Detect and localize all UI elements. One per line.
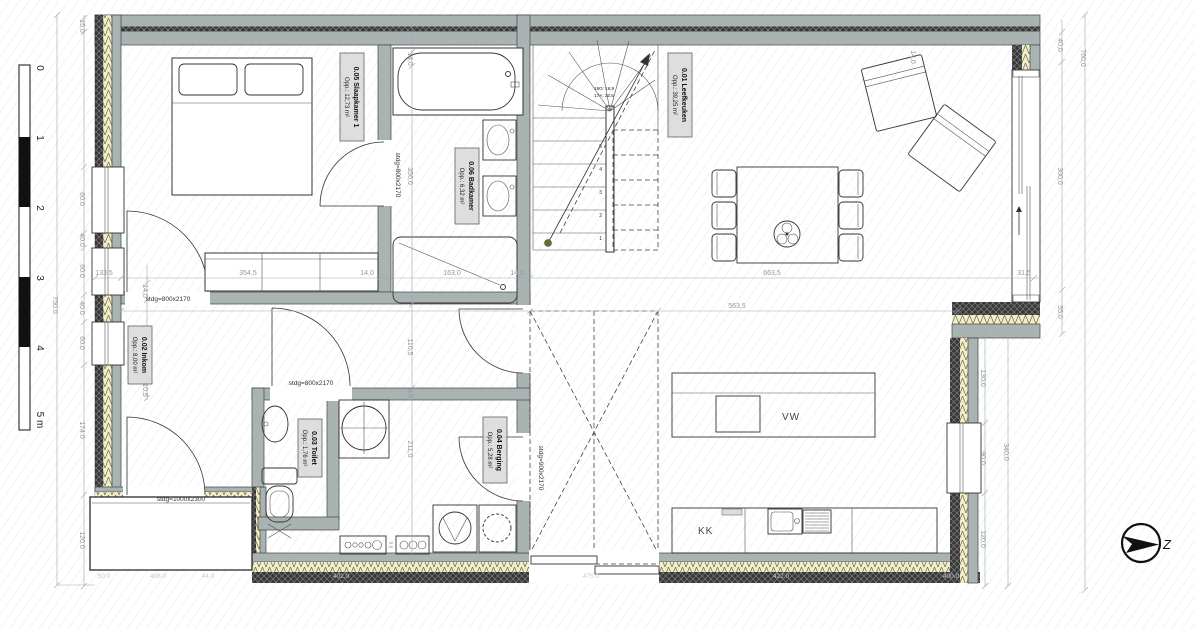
washbasin-tap xyxy=(510,185,514,189)
room-area: Opp.: 5,28 m² xyxy=(486,432,492,469)
dim-left: 15.0 xyxy=(78,19,85,33)
dryer-door xyxy=(483,514,511,542)
room-name: 0.06 Badkamer xyxy=(467,161,474,211)
dim-bottom: 422.0 xyxy=(773,573,790,580)
stair-upper-flight-dashed xyxy=(613,130,658,250)
dim-right: 300,0 xyxy=(1056,167,1063,185)
room-name: 0.03 Toilet xyxy=(310,431,317,465)
dim-right: 55,0 xyxy=(1056,305,1063,319)
room-area: Opp.: 1,76 m² xyxy=(301,430,307,467)
dim-right: 120,0 xyxy=(979,530,986,548)
dim-bottom: 402.0 xyxy=(333,573,350,580)
scale-bar-body xyxy=(19,65,30,430)
chair xyxy=(712,234,736,261)
kitchen-window xyxy=(947,423,981,493)
entry-bedroom-door xyxy=(127,211,208,292)
plant-leaf xyxy=(782,223,792,233)
step-number: 5 xyxy=(599,144,602,150)
bedroom-bathroom-door xyxy=(320,142,384,206)
dim-right-total: 760,0 xyxy=(1079,49,1086,67)
plant-leaf xyxy=(788,234,798,244)
chair xyxy=(839,170,863,197)
terrace xyxy=(90,497,252,570)
void-cross xyxy=(530,311,658,553)
dim-row1: 133,5 xyxy=(95,270,113,277)
room-label-leefkeuken: 0.01 Leefkeuken Opp.: 39,25 m² xyxy=(668,53,692,137)
stairs: 1 2 3 4 5 18O: 16,9 17A: 22,5 xyxy=(533,40,658,252)
scale-label: 0 xyxy=(34,65,45,71)
dim-bottom: 400.0 xyxy=(943,573,960,580)
dim-vertical: 211,0 xyxy=(406,441,413,458)
plant-leaf xyxy=(777,234,787,244)
dining-set xyxy=(712,167,863,263)
dim-left: 120.0 xyxy=(78,531,85,549)
ne-wall-insulation xyxy=(1022,45,1030,70)
door-label: stdg=800x2170 xyxy=(146,296,191,303)
dim-right: 340,0 xyxy=(1002,443,1009,461)
step-number: 2 xyxy=(599,213,602,219)
toilet-cistern xyxy=(262,468,297,484)
room-label-berging: 0.04 Berging Opp.: 5,28 m² xyxy=(483,417,507,483)
door-label: stdg=900x2170 xyxy=(537,446,544,491)
room-label-slaapkamer: 0.05 Slaapkamer 1 Opp.: 12,73 m² xyxy=(340,53,364,141)
scale-label: 4 xyxy=(34,345,45,351)
kitchen: VW KK xyxy=(672,373,937,553)
lounge-chairs xyxy=(861,54,996,191)
dim-row1: 663,5 xyxy=(763,270,781,277)
berging-door-opening xyxy=(516,433,531,501)
compass-label: Z xyxy=(1162,537,1172,552)
dim-vertical: 9,0 xyxy=(406,388,413,398)
party-wall-core xyxy=(95,27,1040,32)
hall-door-opening xyxy=(270,387,352,401)
shower-drain xyxy=(501,285,506,290)
room-label-badkamer: 0.06 Badkamer Opp.: 6,32 m² xyxy=(455,148,479,224)
chair xyxy=(712,170,736,197)
void-area xyxy=(529,311,659,584)
scale-bar-segment xyxy=(19,137,30,207)
dim-left: 40.0 xyxy=(78,233,85,247)
room-area: Opp.: 39,25 m² xyxy=(671,75,677,115)
compass-needle xyxy=(1122,536,1159,553)
washbasin-bowl xyxy=(487,125,509,155)
washing-machine-door xyxy=(439,512,471,544)
stair-treads xyxy=(533,118,607,233)
chair xyxy=(712,202,736,229)
door-label: stdg=800x2170 xyxy=(394,153,401,198)
fridge-label: KK xyxy=(698,526,713,537)
dim-left: 60.0 xyxy=(78,264,85,278)
dim-bottom: 50.0 xyxy=(98,573,111,580)
step-number: 3 xyxy=(599,190,602,196)
bedroom-door-opening xyxy=(377,140,393,206)
room-name: 0.05 Slaapkamer 1 xyxy=(352,67,359,128)
dim-left-total: 750.0 xyxy=(51,296,58,314)
dim-row1: 14,0 xyxy=(510,270,524,277)
counter-faucet xyxy=(795,519,800,524)
dining-table xyxy=(737,167,838,263)
washbasin-bowl xyxy=(487,181,509,211)
stair-start-dot xyxy=(545,240,552,247)
cooktop xyxy=(803,510,831,533)
front-door xyxy=(127,417,205,495)
door-label: stdg=1000x2300 xyxy=(157,496,206,503)
washing-machine-mark xyxy=(443,518,467,541)
toilet-south-wall xyxy=(258,517,339,530)
dim-left: 174.0 xyxy=(78,421,85,439)
dim-vertical: 10,5 xyxy=(141,383,148,397)
floor-plan-drawing: 1 2 3 4 5 18O: 16,9 17A: 22,5 xyxy=(0,0,1195,629)
dim-row1: 354,5 xyxy=(239,270,257,277)
toilet-sink-tap xyxy=(264,422,268,426)
chair xyxy=(839,202,863,229)
ne-wall-masonry xyxy=(1012,45,1022,70)
washbasin xyxy=(483,176,516,216)
toilet-bowl-inner xyxy=(270,491,289,517)
dim-vertical: 110,5 xyxy=(406,339,413,356)
dim-bottom: 406.0 xyxy=(150,573,167,580)
dim-vertical: 14,0 xyxy=(406,52,413,66)
dim-vertical: 356,0 xyxy=(406,167,413,185)
dim-bottom: 44.0 xyxy=(202,573,215,580)
meter-box xyxy=(396,536,429,554)
toilet-east-wall xyxy=(327,400,339,520)
room-area: Opp.: 6,32 m² xyxy=(458,168,464,205)
dim-left: 60.0 xyxy=(78,336,85,350)
stair-arrow-head xyxy=(640,53,650,66)
floor-drain-cross xyxy=(340,402,388,454)
scale-bar-segment xyxy=(19,277,30,347)
living-hall-opening xyxy=(516,305,531,373)
stair-tread-note: 17A: 22,5 xyxy=(594,93,614,98)
dim-row1: 31,5 xyxy=(1017,270,1031,277)
scale-label: 2 xyxy=(34,205,45,211)
counter-sink-bowl xyxy=(771,512,793,531)
living-hall-door xyxy=(459,309,523,373)
room-label-inkom: 0.02 Inkom Opp.: 8,00 m² xyxy=(128,326,152,384)
scale-label: 3 xyxy=(34,275,45,281)
chair xyxy=(839,234,863,261)
scale-label: 5 m xyxy=(34,412,45,429)
toilet-sink xyxy=(262,406,288,442)
stair-winders xyxy=(538,40,655,111)
dim-vertical: 14,0 xyxy=(909,50,916,64)
dim-row2: 563,5 xyxy=(728,303,746,310)
dim-left: 40.0 xyxy=(78,301,85,315)
dim-right: 90,0 xyxy=(979,451,986,465)
dryer xyxy=(479,505,516,552)
notch-wall-inner xyxy=(952,324,1040,338)
step-number: 1 xyxy=(599,236,602,242)
floor-plan-sheet: 1 2 3 4 5 18O: 16,9 17A: 22,5 xyxy=(0,0,1195,629)
stair-riser-note: 18O: 16,9 xyxy=(594,86,615,91)
dim-right: 130,0 xyxy=(979,369,986,387)
cooktop-grill xyxy=(805,513,829,531)
room-name: 0.02 Inkom xyxy=(140,337,147,373)
hall-door xyxy=(272,308,350,386)
dim-row1: 163,0 xyxy=(443,270,461,277)
counter-sink xyxy=(768,509,802,534)
shower-slope-line xyxy=(399,243,500,285)
scale-label: 1 xyxy=(34,135,45,141)
dim-bottom: 475.0 xyxy=(583,573,600,580)
room-name: 0.01 Leefkeuken xyxy=(680,68,687,122)
plant-center xyxy=(786,233,789,236)
room-name: 0.04 Berging xyxy=(495,429,502,471)
stair-walk-line xyxy=(548,57,648,243)
room-area: Opp.: 12,73 m² xyxy=(343,77,349,117)
ne-wall-inner xyxy=(1030,45,1040,70)
armchair xyxy=(861,54,937,131)
notch-wall-masonry xyxy=(952,302,1040,315)
bed xyxy=(172,58,312,195)
north-arrow: Z xyxy=(1122,524,1172,562)
room-area: Opp.: 8,00 m² xyxy=(131,337,137,374)
dim-right: 40,0 xyxy=(1056,38,1063,52)
terrace-outline xyxy=(90,497,252,570)
room-label-toilet: 0.03 Toilet Opp.: 1,76 m² xyxy=(298,419,322,477)
dim-left: 60.0 xyxy=(78,192,85,206)
living-sliding-door xyxy=(1012,70,1040,302)
door-label: stdg=800x2170 xyxy=(289,380,334,387)
counter-strip xyxy=(722,509,742,515)
island-sink xyxy=(716,396,760,432)
armchair xyxy=(908,104,996,192)
washbasin-tap xyxy=(510,129,514,133)
dim-row1: 14,0 xyxy=(360,270,374,277)
scale-bar: 0 1 2 3 4 5 m xyxy=(19,65,45,430)
dishwasher-label: VW xyxy=(782,412,800,423)
step-number: 4 xyxy=(599,167,602,173)
kitchen-island xyxy=(672,373,875,437)
notch-wall-insulation xyxy=(952,315,1040,324)
washbasin xyxy=(483,120,516,160)
